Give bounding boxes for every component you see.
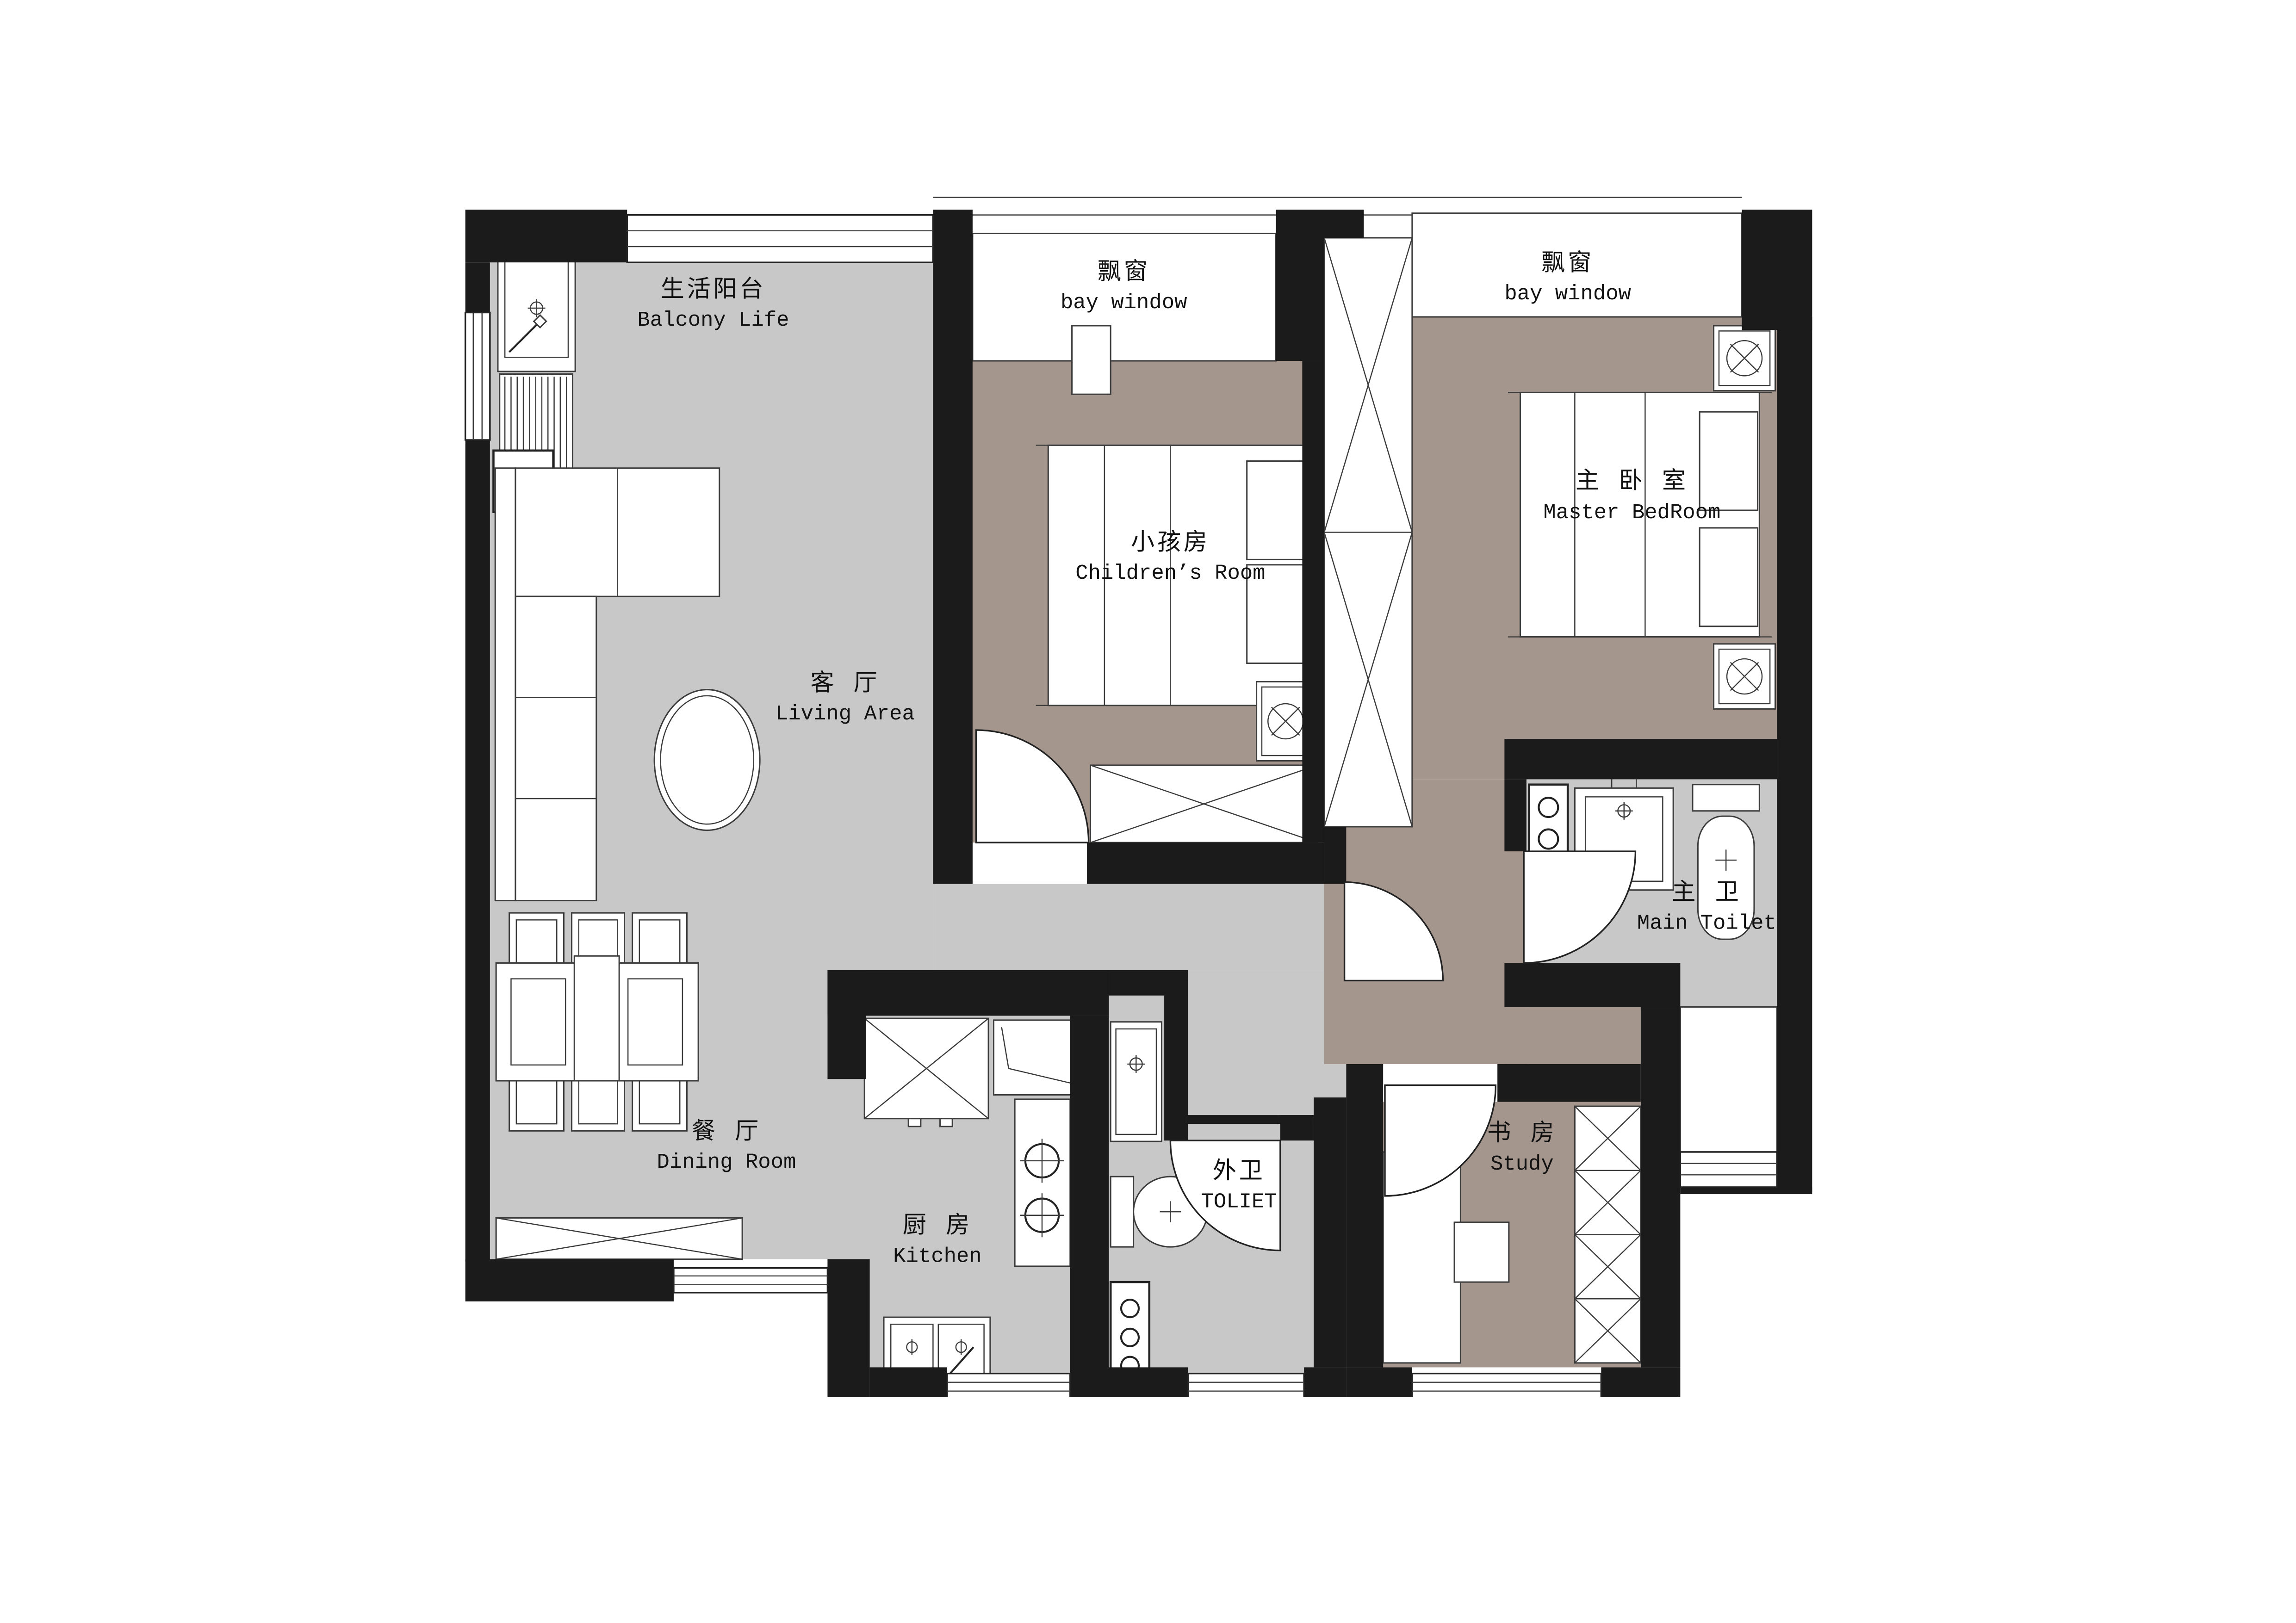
dining-chair xyxy=(509,1081,687,1131)
label-zh: 飘窗 xyxy=(1098,259,1150,286)
label-en: bay window xyxy=(1061,291,1187,315)
label-zh: 飘窗 xyxy=(1541,250,1594,278)
window xyxy=(1188,1374,1304,1397)
floor-corridor-strip xyxy=(1504,1007,1640,1064)
label-zh: 主 卧 室 xyxy=(1576,468,1688,496)
corner-counter xyxy=(994,1020,1077,1095)
table-runner xyxy=(574,956,619,1088)
wardrobe xyxy=(1575,1106,1640,1363)
floor-hallway xyxy=(933,884,1346,970)
dining-set xyxy=(496,913,698,1131)
window xyxy=(1412,1374,1601,1397)
floor-plan: 生活阳台 Balcony Life 飘窗 bay window 飘窗 bay w… xyxy=(458,185,1837,1397)
pillow xyxy=(1700,412,1757,510)
coffee-table xyxy=(654,690,760,830)
desk-chair xyxy=(1454,1222,1509,1282)
pillow xyxy=(1700,528,1757,626)
sideboard-cabinet xyxy=(496,1218,742,1259)
label-en: Main Toilet xyxy=(1637,911,1776,935)
window xyxy=(947,1374,1070,1397)
window xyxy=(465,312,490,440)
label-zh: 小孩房 xyxy=(1131,529,1210,557)
label-en: Kitchen xyxy=(893,1244,981,1268)
label-en: Master BedRoom xyxy=(1543,501,1720,525)
laundry-sink-icon xyxy=(498,245,575,372)
nightstand xyxy=(1714,326,1775,391)
bay-table xyxy=(1072,326,1111,394)
label-en: Children’s Room xyxy=(1075,561,1265,585)
label-en: bay window xyxy=(1504,282,1631,306)
window xyxy=(627,215,933,263)
vanity-sink-icon xyxy=(1111,1022,1161,1141)
fridge xyxy=(864,1018,988,1127)
label-zh: 外卫 xyxy=(1213,1158,1266,1186)
label-en: Dining Room xyxy=(657,1150,796,1174)
exterior-niche xyxy=(1680,1007,1777,1152)
washing-machine-icon xyxy=(1111,1282,1149,1379)
label-zh: 厨 房 xyxy=(903,1213,972,1240)
label-en: Balcony Life xyxy=(637,308,789,332)
stove-icon xyxy=(1015,1099,1070,1266)
label-zh: 生活阳台 xyxy=(660,276,766,304)
floor-plan-canvas: 生活阳台 Balcony Life 飘窗 bay window 飘窗 bay w… xyxy=(458,185,1837,1397)
label-zh: 餐 厅 xyxy=(692,1118,761,1146)
duct-shaft xyxy=(1324,238,1412,827)
label-zh: 书 房 xyxy=(1487,1120,1557,1148)
label-en: Living Area xyxy=(776,702,915,726)
nightstand xyxy=(1714,644,1775,709)
wardrobe xyxy=(1091,765,1317,842)
window xyxy=(1680,1152,1777,1187)
label-en: Study xyxy=(1490,1152,1554,1176)
pillow xyxy=(1247,461,1307,560)
window xyxy=(674,1268,827,1293)
label-zh: 客 厅 xyxy=(810,670,880,698)
label-en: TOLIET xyxy=(1201,1190,1277,1214)
label-zh: 主 卫 xyxy=(1672,880,1741,907)
